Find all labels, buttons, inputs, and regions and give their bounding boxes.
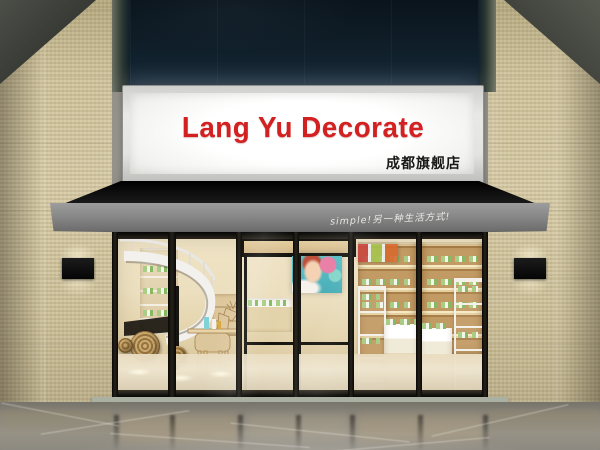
mullion [236,232,242,402]
floor-reflection [0,410,112,450]
floor-reflection [488,410,600,450]
lamp-glow [58,279,98,297]
wall-art-boxes [358,244,398,262]
product-row [362,279,410,285]
product-row [458,286,478,292]
product-row [422,323,450,329]
product-row [386,319,416,325]
mullion [168,232,176,402]
awning-slogan: simple!另一种生活方式! [330,208,451,227]
facade-recess-right [478,0,496,92]
product-row [362,294,380,300]
product-row [458,332,478,338]
mullion-reflection [350,415,355,450]
mullion [416,232,422,402]
mullion-reflection [296,415,301,450]
storefront-glazing [112,232,488,402]
lamp-glow [510,279,550,297]
sign-title: Lang Yu Decorate [130,112,476,145]
product-row [427,256,477,262]
lamp-glow [510,243,550,259]
awning-valance: simple!另一种生活方式! [50,203,550,235]
awning-canopy [58,181,542,206]
mullion [293,232,299,402]
woven-disc-decor [118,338,133,353]
marble-floor [0,402,600,450]
upper-facade-panel [130,0,478,92]
mullion-reflection [483,415,488,450]
floor-spotlight [126,368,152,376]
mullion-reflection [238,415,243,450]
mullion-reflection [418,415,423,450]
product-row [362,338,380,344]
mullion [112,232,118,402]
mullion [348,232,354,402]
mullion [482,232,488,402]
floor-spotlight [208,370,234,378]
door-midrail [301,342,349,345]
wall-sconce-right [514,258,546,279]
signboard: Lang Yu Decorate 成都旗舰店 [122,85,484,184]
facade-recess-left [112,0,130,92]
mullion-reflection [170,415,175,450]
sign-subtitle: 成都旗舰店 [386,153,461,173]
wall-sconce-left [62,258,94,279]
door-midrail [247,342,295,345]
storefront-scene: Lang Yu Decorate 成都旗舰店 simple!另一种生活方式! [0,0,600,450]
lamp-glow [58,243,98,259]
